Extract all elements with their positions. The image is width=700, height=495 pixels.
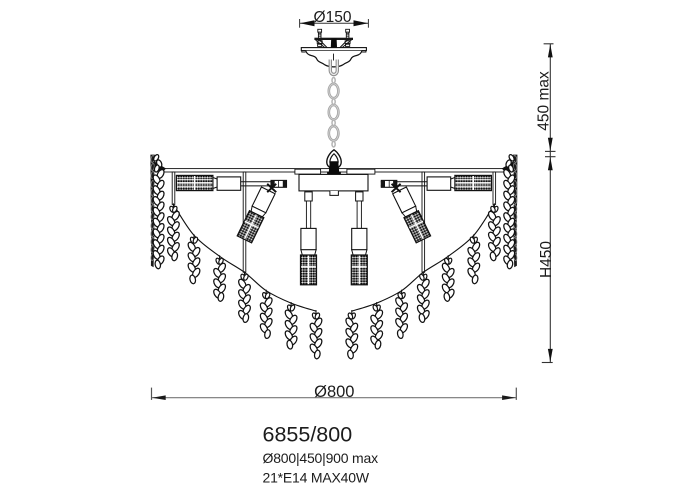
svg-text:6855/800: 6855/800	[263, 422, 353, 446]
svg-text:Ø800|450|900 max: Ø800|450|900 max	[263, 450, 379, 466]
svg-text:Ø800: Ø800	[314, 383, 354, 401]
svg-text:H450: H450	[538, 241, 555, 278]
svg-text:21*E14 MAX40W: 21*E14 MAX40W	[263, 469, 370, 485]
svg-text:450 max: 450 max	[535, 71, 552, 131]
